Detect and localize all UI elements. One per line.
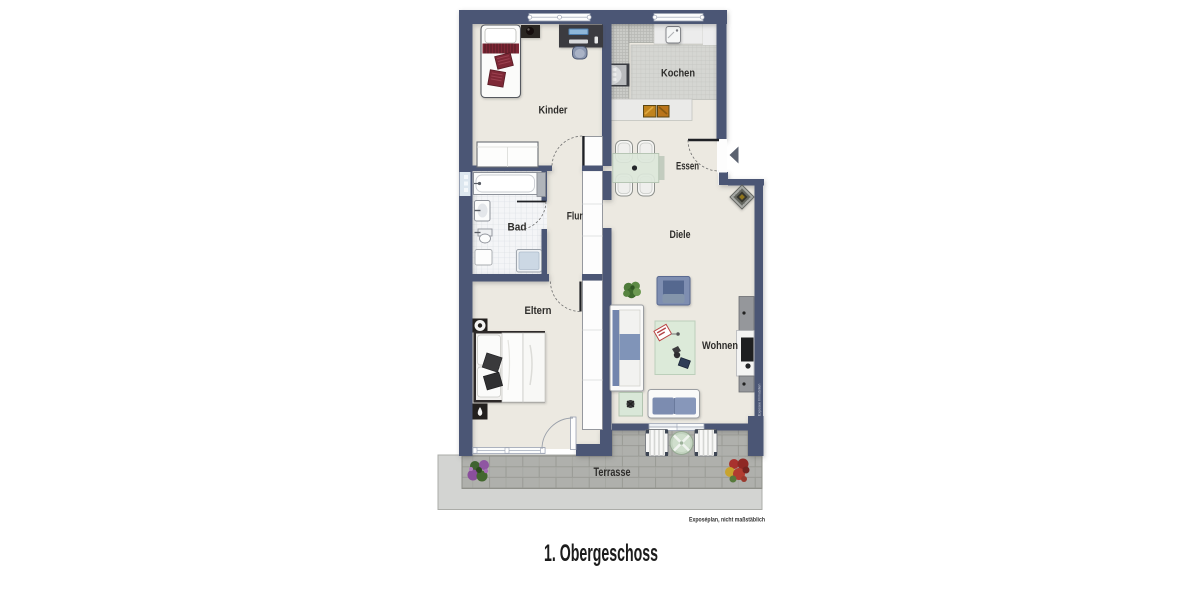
svg-text:Essen: Essen (676, 160, 699, 172)
svg-text:Kochen: Kochen (661, 68, 695, 80)
svg-text:Bad: Bad (508, 222, 527, 234)
svg-text:1. Obergeschoss: 1. Obergeschoss (544, 540, 658, 567)
svg-text:Wohnen: Wohnen (702, 340, 738, 352)
svg-text:Eltern: Eltern (525, 305, 552, 317)
svg-text:Kinder: Kinder (539, 105, 569, 117)
svg-text:Diele: Diele (670, 229, 691, 241)
svg-text:Exposee Immobilien: Exposee Immobilien (758, 384, 762, 416)
svg-text:Exposéplan, nicht maßstäblich: Exposéplan, nicht maßstäblich (689, 518, 765, 524)
svg-text:Flur: Flur (567, 211, 584, 223)
svg-text:Terrasse: Terrasse (594, 467, 631, 479)
